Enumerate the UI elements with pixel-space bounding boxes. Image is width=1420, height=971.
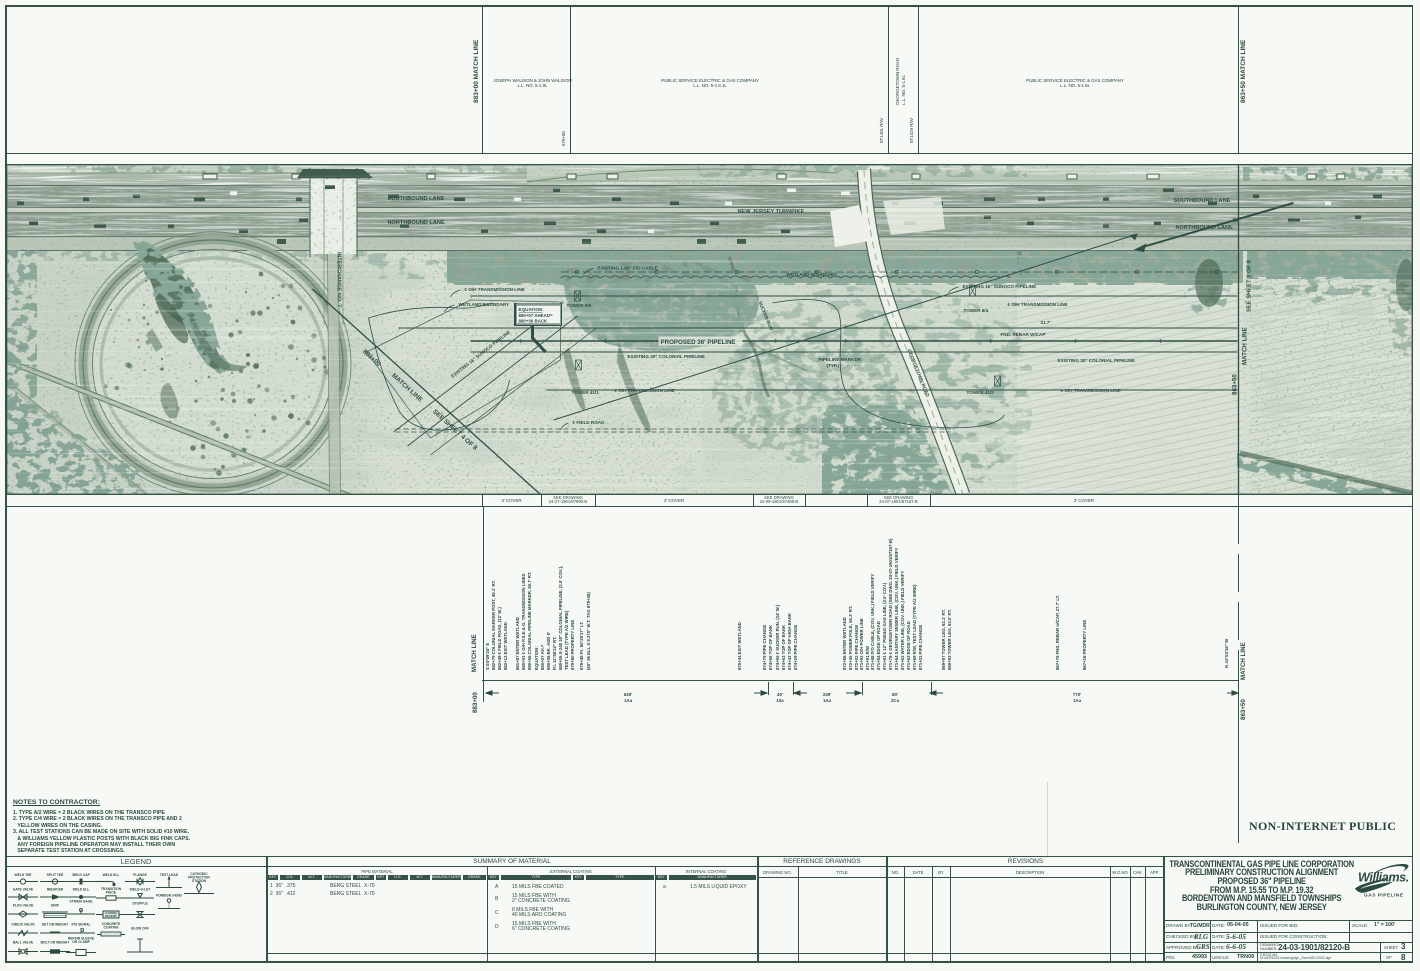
svg-text:GAS PIPELINE: GAS PIPELINE	[1364, 893, 1404, 899]
svg-text:¢ O/H TRANSMISSION LINE: ¢ O/H TRANSMISSION LINE	[464, 287, 524, 292]
svg-text:PROPOSED 36' PIPELINE: PROPOSED 36' PIPELINE	[660, 339, 735, 346]
svg-text:863+50: 863+50	[1231, 374, 1238, 395]
svg-text:STRAIN GAGE: STRAIN GAGE	[70, 900, 94, 904]
svg-text:¢: ¢	[989, 339, 992, 345]
svg-text:TOWER 9/5: TOWER 9/5	[566, 303, 591, 308]
svg-text:¢: ¢	[604, 339, 607, 345]
svg-text:CHECK VALVE: CHECK VALVE	[11, 923, 35, 927]
svg-text:¢ O/H TRANSMISSION LINE: ¢ O/H TRANSMISSION LINE	[1060, 388, 1120, 393]
svg-text:WELD CAP: WELD CAP	[72, 873, 90, 877]
svg-text:SPLIT TEE: SPLIT TEE	[47, 873, 64, 877]
svg-text:WELD ELL: WELD ELL	[73, 888, 90, 892]
svg-text:INTERCHANGE NO. 7: INTERCHANGE NO. 7	[335, 252, 341, 307]
svg-text:WELD ELL: WELD ELL	[103, 873, 120, 877]
svg-text:¢ FIELD ROAD: ¢ FIELD ROAD	[572, 420, 605, 425]
svg-text:DRIP: DRIP	[51, 904, 60, 908]
svg-text:EXISTING 30" COLONIAL PIPELINE: EXISTING 30" COLONIAL PIPELINE	[627, 354, 704, 359]
svg-text:FND. REBAR W/CAP: FND. REBAR W/CAP	[1000, 332, 1045, 337]
svg-text:¢: ¢	[1159, 339, 1162, 345]
svg-text:PIG SIGNAL: PIG SIGNAL	[71, 923, 90, 927]
svg-text:FLANGE: FLANGE	[133, 873, 147, 877]
svg-text:MATCH LINE: MATCH LINE	[1241, 327, 1248, 365]
svg-text:¢: ¢	[774, 339, 777, 345]
svg-text:BLOW OFF: BLOW OFF	[131, 927, 149, 931]
svg-text:EXISTING 16″ SUNOCO PIPELINE: EXISTING 16″ SUNOCO PIPELINE	[962, 284, 1036, 289]
svg-text:NORTHBOUND LANE: NORTHBOUND LANE	[387, 220, 444, 226]
svg-text:880+36 BACK: 880+36 BACK	[518, 319, 548, 324]
svg-text:¢: ¢	[519, 339, 522, 345]
svg-text:WETLAND BOUNDARY: WETLAND BOUNDARY	[458, 302, 509, 307]
svg-text:COATING: COATING	[104, 926, 119, 930]
svg-text:WETLAND BOUNDARY: WETLAND BOUNDARY	[786, 272, 837, 277]
svg-text:¢ O/H TRANSMISSION LINE: ¢ O/H TRANSMISSION LINE	[614, 388, 674, 393]
svg-text:SEE SHEET 2 OF 8: SEE SHEET 2 OF 8	[1246, 259, 1252, 312]
svg-text:REDUCER: REDUCER	[47, 888, 64, 892]
svg-text:WELD TEE: WELD TEE	[14, 873, 32, 877]
svg-text:EXISTING 30" COLONIAL PIPELINE: EXISTING 30" COLONIAL PIPELINE	[1057, 358, 1134, 363]
svg-text:SET ON WEIGHT: SET ON WEIGHT	[42, 923, 68, 927]
svg-text:BOLT ON WEIGHT: BOLT ON WEIGHT	[41, 941, 70, 945]
svg-text:(TYP.): (TYP.)	[826, 363, 839, 368]
svg-text:EQUATION: EQUATION	[518, 307, 543, 312]
svg-text:WELD-O-LET: WELD-O-LET	[130, 888, 151, 892]
svg-text:TOWER 9/4: TOWER 9/4	[963, 308, 988, 313]
svg-text:¢: ¢	[844, 339, 847, 345]
svg-text:SOUTHBOUND LANE: SOUTHBOUND LANE	[387, 196, 444, 202]
svg-text:SOUTHBOUND LANE: SOUTHBOUND LANE	[1173, 198, 1230, 204]
svg-text:880+07 AHEAD=: 880+07 AHEAD=	[518, 313, 552, 318]
svg-text:FOREIGN 3-END: FOREIGN 3-END	[156, 894, 182, 898]
svg-text:PIPELINE MARKER: PIPELINE MARKER	[818, 357, 861, 362]
svg-text:EXISTING 1-96″ F/O CABLE: EXISTING 1-96″ F/O CABLE	[597, 266, 657, 271]
svg-text:¢ O/H TRANSMISSION LINE: ¢ O/H TRANSMISSION LINE	[1007, 302, 1067, 307]
svg-text:¢: ¢	[1074, 339, 1077, 345]
svg-text:TOWER 41/2: TOWER 41/2	[966, 390, 994, 395]
svg-text:BALL VALVE: BALL VALVE	[13, 941, 34, 945]
svg-text:Williams.: Williams.	[1358, 871, 1409, 885]
svg-text:NEW JERSEY TURNPIKE: NEW JERSEY TURNPIKE	[737, 209, 804, 215]
svg-text:W/VENT: W/VENT	[105, 914, 117, 918]
svg-text:STOPPLE: STOPPLE	[132, 902, 148, 906]
svg-text:21.7': 21.7'	[1040, 320, 1050, 325]
svg-text:PLUG VALVE: PLUG VALVE	[13, 904, 34, 908]
svg-text:NORTHBOUND LANE: NORTHBOUND LANE	[1175, 225, 1232, 231]
svg-text:OR CLAMP: OR CLAMP	[72, 940, 90, 944]
svg-text:GATE VALVE: GATE VALVE	[13, 888, 34, 892]
svg-text:TOWER 41/1: TOWER 41/1	[571, 390, 599, 395]
svg-text:PIECE: PIECE	[106, 891, 117, 895]
